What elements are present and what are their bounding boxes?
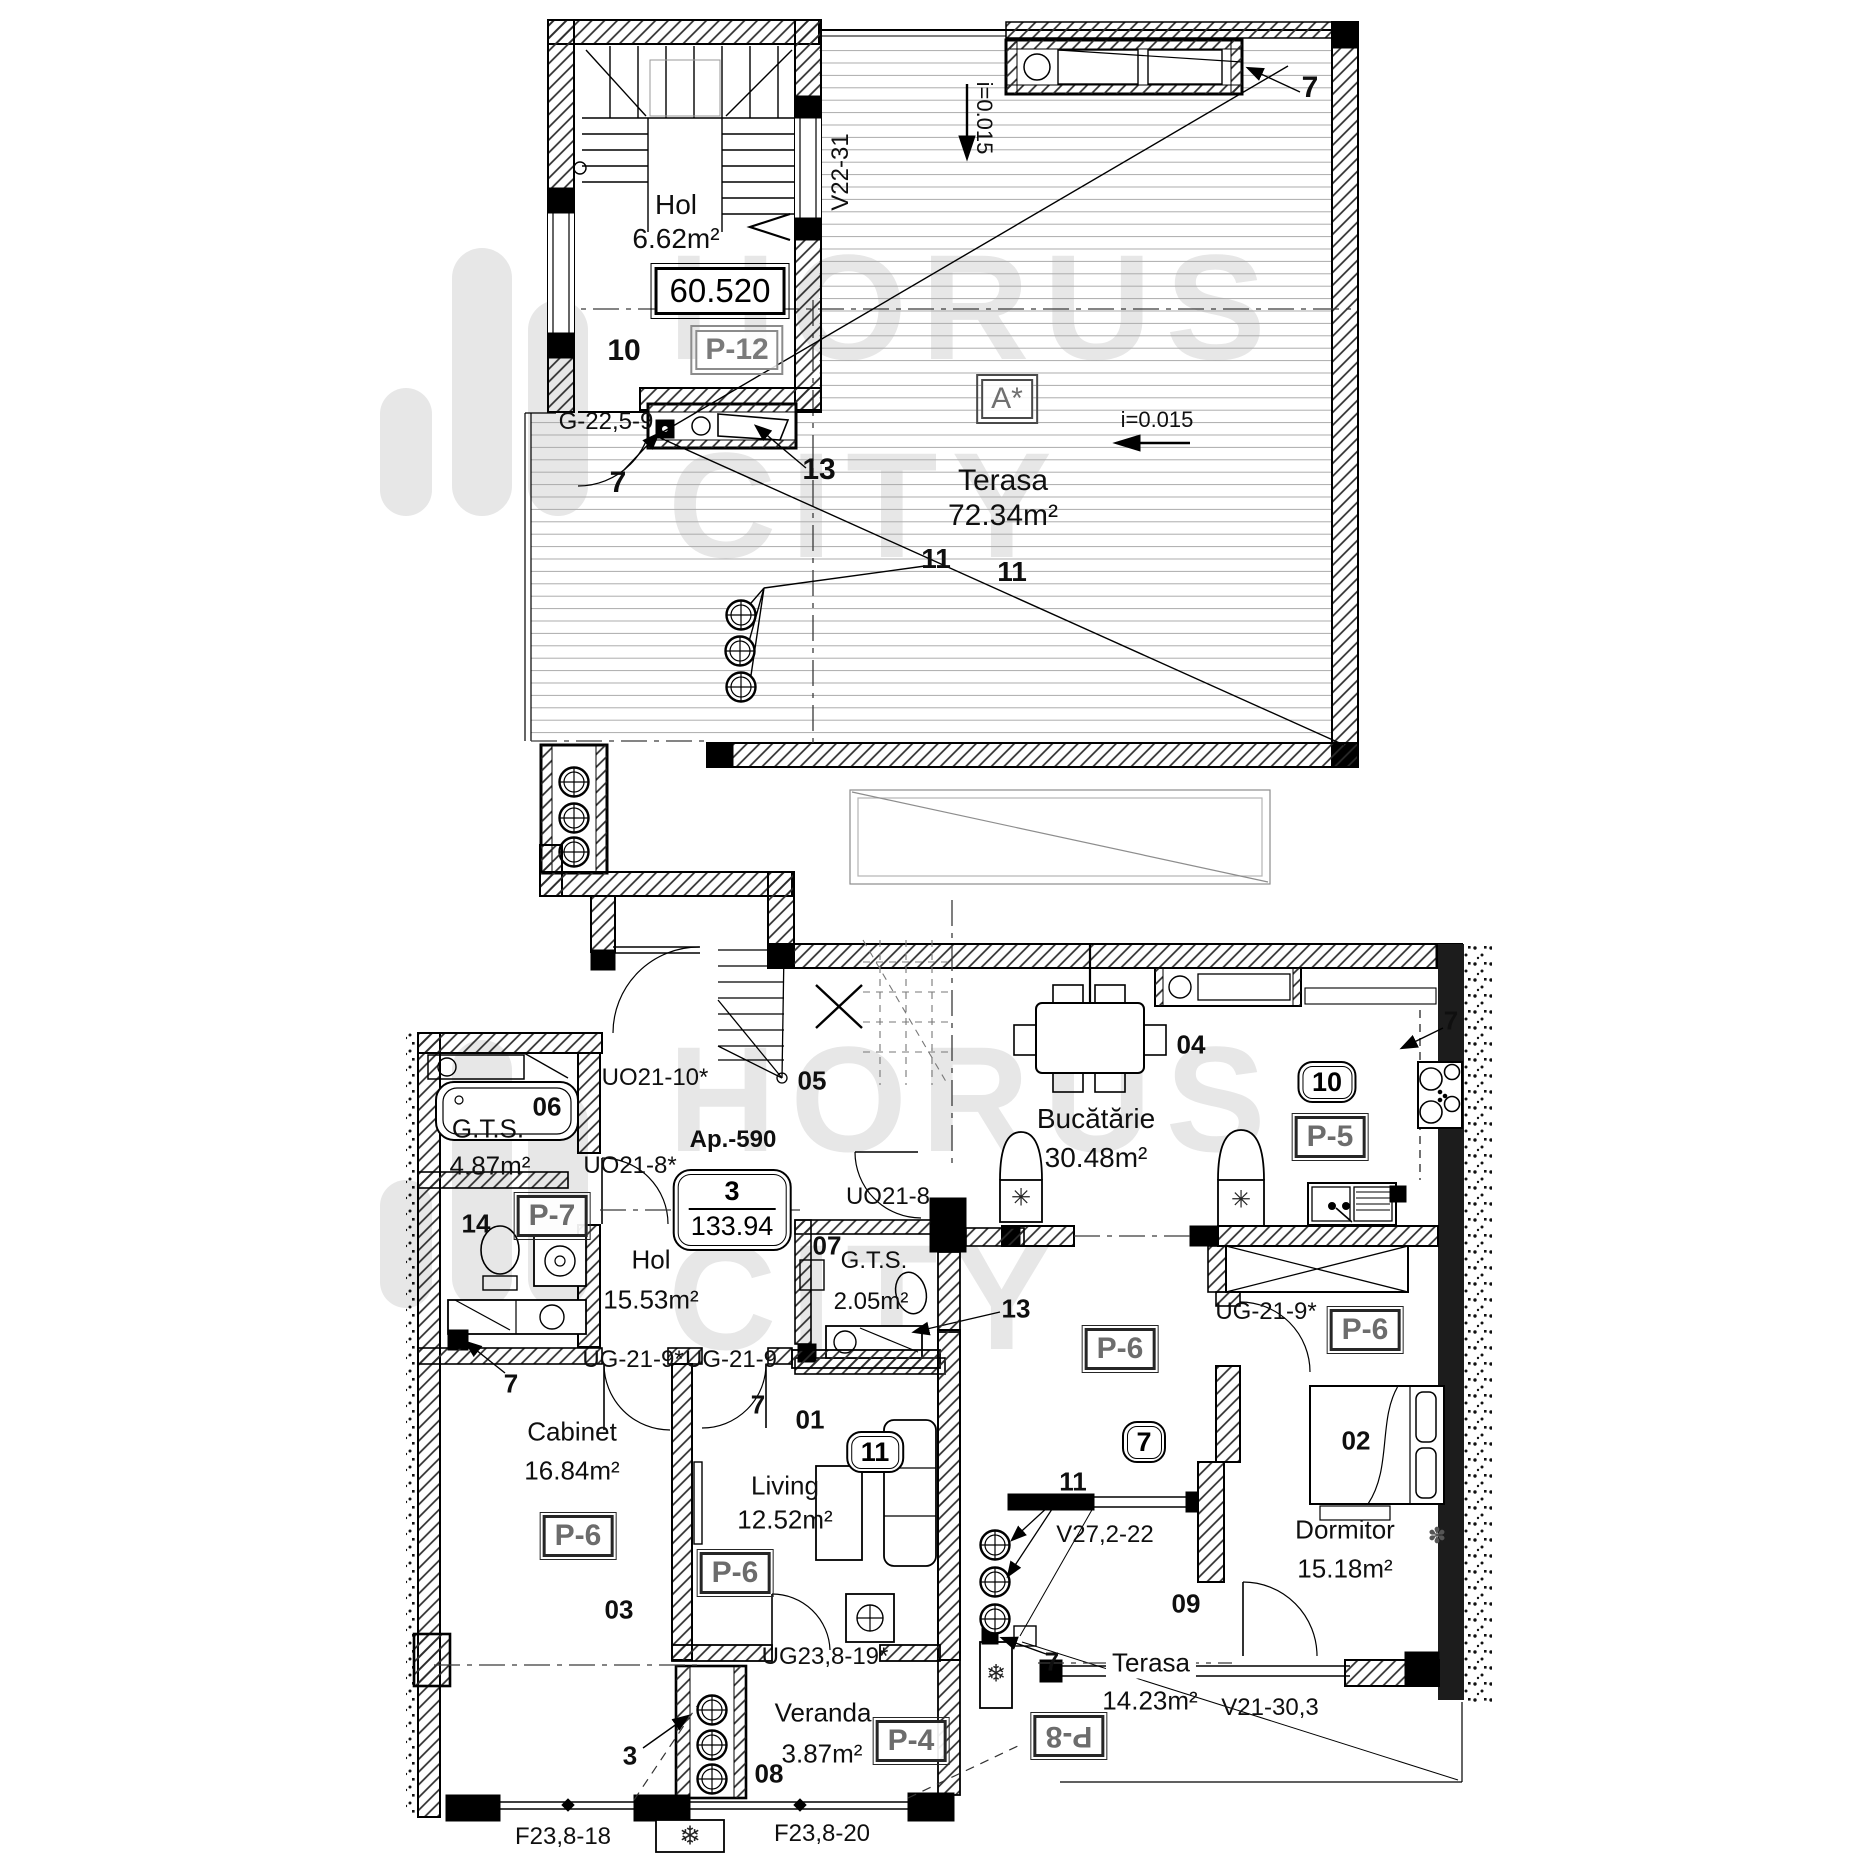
lower-roof-edge <box>850 790 1270 884</box>
terrace-decking <box>819 40 1332 743</box>
door-code-ug23-8-19: UG23,8-19* <box>762 1643 889 1671</box>
keynote-badge-11-value: 11 <box>851 1436 900 1469</box>
finish-badge-p6-dorm: P-6 <box>1330 1309 1401 1351</box>
entrance-door <box>613 947 700 1033</box>
veranda-name: Veranda <box>775 1698 872 1729</box>
keynote-7-kitchen: 7 <box>1444 1006 1458 1037</box>
upper-topright-planter <box>1006 40 1242 94</box>
keynote-7-left: 7 <box>504 1369 518 1400</box>
room-number-01: 01 <box>796 1405 825 1436</box>
upper-plan <box>525 20 1358 884</box>
lower-hol-area: 15.53m² <box>603 1285 698 1316</box>
apartment-number: Ap.-590 <box>690 1126 777 1154</box>
keynote-11-upper-b: 11 <box>997 556 1027 588</box>
gts06-area: 4.87m² <box>450 1151 531 1182</box>
room-number-07: 07 <box>813 1231 842 1262</box>
keynote-badge-11: 11 <box>846 1431 904 1473</box>
ac-unit-icon-veranda: ❄ <box>679 1821 701 1852</box>
door-code-uo21-8s: UO21-8* <box>583 1152 676 1180</box>
apartment-total-area: 133.94 <box>689 1210 776 1244</box>
room-number-08: 08 <box>755 1759 784 1790</box>
kitchen-area: 30.48m² <box>1045 1142 1148 1174</box>
door-code-uo21-8: UO21-8 <box>846 1183 930 1211</box>
upper-terasa-area: 72.34m² <box>948 499 1058 533</box>
keynote-7-doors: 7 <box>751 1390 765 1421</box>
finish-badge-p7: P-7 <box>517 1195 588 1237</box>
dormitor-name: Dormitor <box>1295 1515 1395 1546</box>
keynote-11-living: 11 <box>1059 1467 1087 1498</box>
room-number-05: 05 <box>798 1066 827 1097</box>
slope-label-horizontal: i=0.015 <box>1121 407 1194 433</box>
finish-badge-p8-rotated: P-8 <box>1034 1715 1105 1757</box>
window-code-f23-8-18: F23,8-18 <box>515 1823 611 1851</box>
upper-hol-area: 6.62m² <box>632 223 719 255</box>
keynote-badge-10-value: 10 <box>1302 1066 1352 1099</box>
lower-hol-name: Hol <box>631 1245 670 1276</box>
room-number-06: 06 <box>533 1092 562 1123</box>
door-code-ug21-9: UG-21-9 <box>685 1346 777 1374</box>
gts07-area: 2.05m² <box>834 1288 909 1316</box>
window-code-v22-31: V22-31 <box>827 133 855 210</box>
finish-badge-p6-living: P-6 <box>700 1552 771 1594</box>
keynote-13-upper: 13 <box>802 453 835 487</box>
fridge-icon: ✳ <box>1231 1186 1251 1215</box>
finish-badge-p5: P-5 <box>1295 1116 1366 1158</box>
living-area: 12.52m² <box>737 1505 832 1536</box>
floor-plan-canvas: HORUSCITY HORUSCITY <box>0 0 1875 1876</box>
keynote-badge-10: 10 <box>1297 1061 1356 1103</box>
door-code-ug21-9s-b: UG-21-9* <box>1215 1298 1316 1326</box>
gts07-name: G.T.S. <box>841 1247 908 1275</box>
door-code-uo21-10: UO21-10* <box>602 1064 709 1092</box>
dormitor-area: 15.18m² <box>1297 1554 1392 1585</box>
plan-linework <box>0 0 1875 1876</box>
door-code-ug21-9s-a: UG-21-9* <box>582 1346 683 1374</box>
boiler-icon: ✳ <box>1011 1184 1031 1213</box>
level-badge: 60.520 <box>655 267 786 315</box>
window-code-f23-8-20: F23,8-20 <box>774 1820 870 1848</box>
lower-terasa-area: 14.23m² <box>1102 1686 1197 1717</box>
kitchen-name: Bucătărie <box>1037 1103 1155 1135</box>
room-number-04: 04 <box>1177 1030 1206 1061</box>
room-number-14: 14 <box>462 1209 491 1240</box>
keynote-badge-7: 7 <box>1122 1421 1166 1463</box>
lower-terasa-name: Terasa <box>1106 1648 1196 1679</box>
cabinet-name: Cabinet <box>527 1417 617 1448</box>
ac-unit-icon-terasa: ❄ <box>986 1660 1006 1689</box>
cabinet-area: 16.84m² <box>524 1456 619 1487</box>
room-number-02: 02 <box>1342 1426 1371 1457</box>
finish-badge-p6-cabinet: P-6 <box>543 1515 614 1557</box>
drain-code-g2259: G-22,5-9 <box>559 408 654 436</box>
keynote-badge-7-value: 7 <box>1126 1426 1161 1459</box>
plant-icon: ✽ <box>1428 1523 1446 1549</box>
gts06-name: G.T.S. <box>452 1114 524 1145</box>
terasa-window-wall <box>1008 1492 1198 1512</box>
veranda-area: 3.87m² <box>782 1739 863 1770</box>
keynote-7-terasa: 7 <box>1045 1647 1059 1678</box>
apartment-badge: 3 133.94 <box>673 1169 792 1251</box>
finish-badge-p6-mid: P-6 <box>1085 1328 1156 1370</box>
window-code-v21-30-3: V21-30,3 <box>1221 1694 1318 1722</box>
finish-badge-p12: P-12 <box>695 330 778 370</box>
window-code-v27-2-22: V27,2-22 <box>1056 1521 1153 1549</box>
section-badge-a-star: A* <box>981 379 1033 419</box>
upper-terasa-name: Terasa <box>958 464 1048 498</box>
keynote-13-lower: 13 <box>1002 1294 1031 1325</box>
apartment-rooms-count: 3 <box>689 1176 776 1210</box>
keynote-7-upper-mid: 7 <box>610 466 627 500</box>
keynote-10-upper: 10 <box>607 334 640 368</box>
room-number-03: 03 <box>605 1595 634 1626</box>
keynote-7-upper-corner: 7 <box>1302 71 1319 105</box>
slope-label-vertical: i=0.015 <box>971 82 997 155</box>
upper-hol-name: Hol <box>655 189 697 221</box>
living-name: Living <box>751 1471 819 1502</box>
keynote-3-veranda: 3 <box>623 1741 637 1772</box>
keynote-11-upper-a: 11 <box>921 543 951 575</box>
room-number-09: 09 <box>1172 1589 1201 1620</box>
finish-badge-p4: P-4 <box>876 1720 947 1762</box>
